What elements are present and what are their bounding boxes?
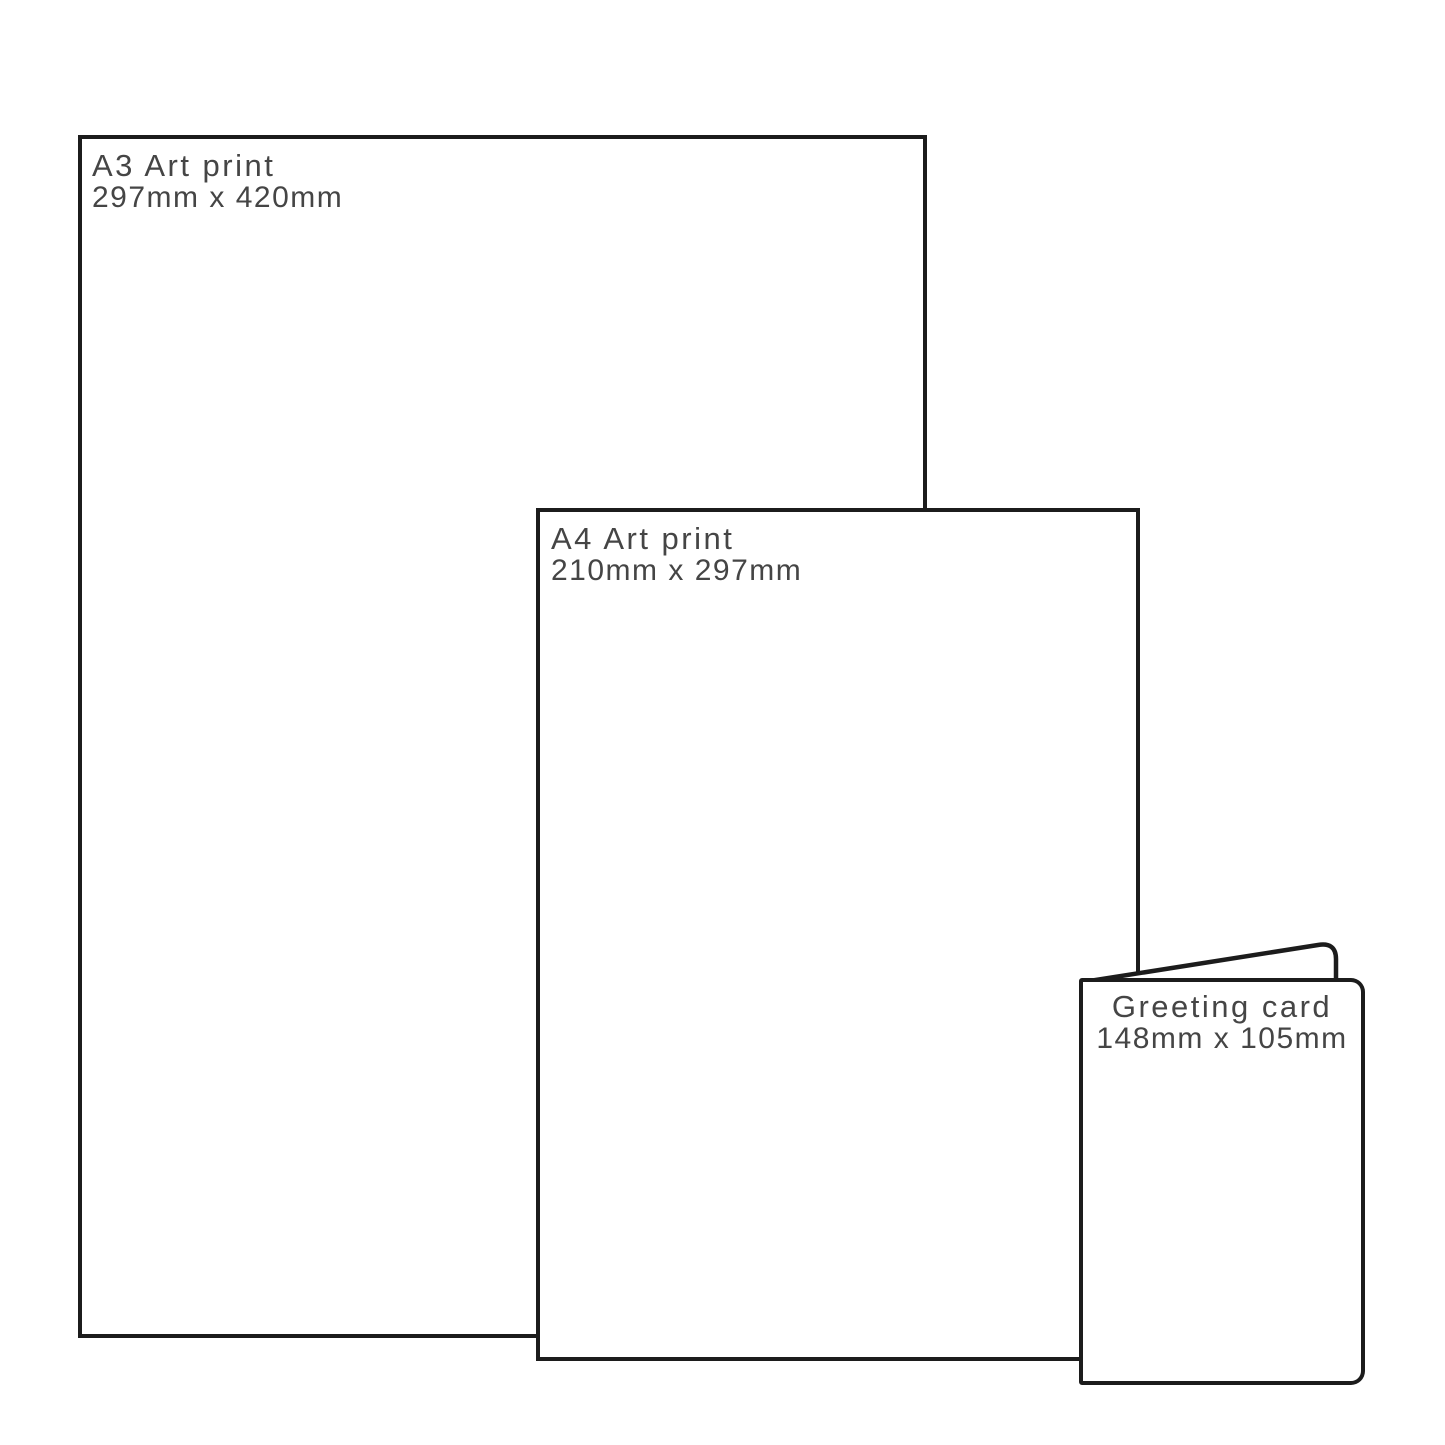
a3-dimensions: 297mm x 420mm — [92, 182, 923, 214]
greeting-card-title: Greeting card — [1083, 990, 1361, 1023]
a4-sheet-outline: A4 Art print 210mm x 297mm — [536, 508, 1140, 1361]
a4-title: A4 Art print — [551, 522, 1136, 555]
greeting-card-label-group: Greeting card 148mm x 105mm — [1083, 990, 1361, 1055]
a3-title: A3 Art print — [92, 149, 923, 182]
a3-label-group: A3 Art print 297mm x 420mm — [92, 149, 923, 214]
a4-dimensions: 210mm x 297mm — [551, 555, 1136, 587]
greeting-card-front-panel: Greeting card 148mm x 105mm — [1079, 978, 1365, 1385]
a4-label-group: A4 Art print 210mm x 297mm — [551, 522, 1136, 587]
greeting-card-dimensions: 148mm x 105mm — [1083, 1023, 1361, 1055]
size-comparison-diagram: A3 Art print 297mm x 420mm A4 Art print … — [0, 0, 1445, 1445]
